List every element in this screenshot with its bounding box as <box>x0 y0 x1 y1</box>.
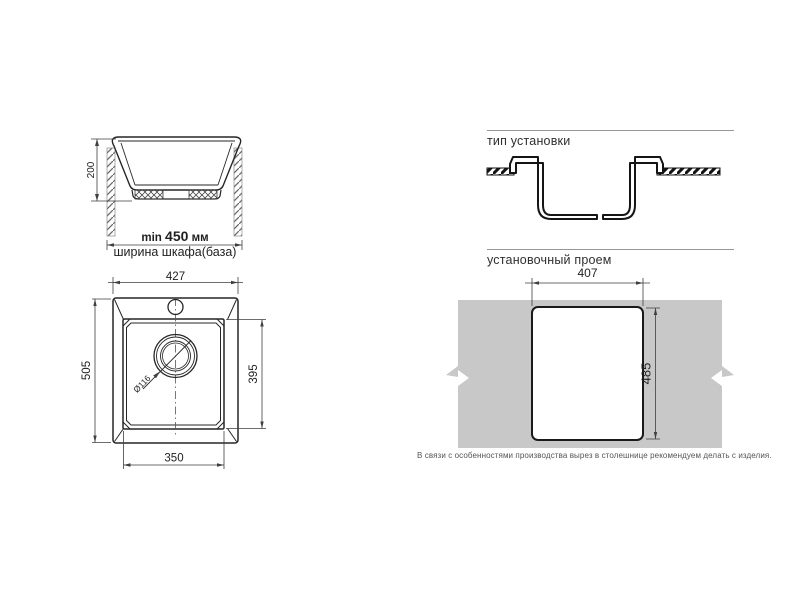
min-unit: мм <box>192 232 209 244</box>
arrow-down-icon <box>93 436 96 443</box>
arrow-up-icon <box>95 139 99 146</box>
production-note: В связи с особенностями производства выр… <box>417 451 772 460</box>
min-value: 450 <box>165 228 188 244</box>
arrow-right-icon <box>217 463 224 466</box>
break-mark-right-icon <box>722 366 734 377</box>
bowl-width-label: 350 <box>164 453 183 465</box>
cutout-width-label: 407 <box>577 266 597 280</box>
min-prefix: min <box>141 232 161 244</box>
cabinet-min-width-label: min 450 мм <box>105 228 245 244</box>
section-divider-bottom <box>487 249 734 250</box>
install-type-title: тип установки <box>487 134 570 148</box>
height-dim-lines <box>92 299 111 443</box>
overall-width-label: 427 <box>166 271 185 283</box>
cabinet-wall-left <box>107 148 115 236</box>
bowl-rim-inner <box>127 323 221 425</box>
arrow-right-icon <box>231 281 238 284</box>
cabinet-base-label: ширина шкафа(база) <box>95 245 255 259</box>
section-divider-top <box>487 130 734 131</box>
top-view-figure: Ø116 427 505 395 350 <box>80 268 285 473</box>
arrow-down-icon <box>95 194 99 201</box>
arrow-up-icon <box>93 299 96 306</box>
bowl-corner-marks <box>123 319 224 429</box>
sink-bowl-outline <box>112 137 240 190</box>
arrow-up-icon <box>260 320 263 327</box>
sink-wall-inner-lines <box>121 143 232 185</box>
sink-profile-left <box>510 157 597 219</box>
depth-dim-label: 200 <box>86 161 97 178</box>
overall-height-label: 505 <box>81 361 93 380</box>
sink-base-pad-right <box>189 190 217 199</box>
technical-drawing: 200 min 450 мм ширина шкафа(база) тип ус… <box>0 0 800 600</box>
cutout-figure: 407 485 <box>440 262 770 458</box>
arrow-right-icon <box>636 281 643 284</box>
drain-diameter-label: Ø116 <box>131 373 152 395</box>
break-mark-left-icon <box>446 366 458 377</box>
arrow-down-icon <box>260 422 263 429</box>
arrow-left-icon <box>113 281 120 284</box>
bowl-rim-outer <box>123 319 224 429</box>
arrow-left-icon <box>124 463 131 466</box>
arrow-left-icon <box>532 281 539 284</box>
cutout-height-label: 485 <box>639 363 654 385</box>
cabinet-wall-right <box>234 148 242 236</box>
bowl-height-label: 395 <box>248 364 260 383</box>
sink-base-pad-left <box>135 190 163 199</box>
bowl-height-dim-lines <box>226 320 266 429</box>
install-type-figure <box>485 150 737 228</box>
countertop-bar-right <box>657 168 720 175</box>
sink-profile-right <box>603 157 663 219</box>
cutout-opening <box>532 307 643 440</box>
